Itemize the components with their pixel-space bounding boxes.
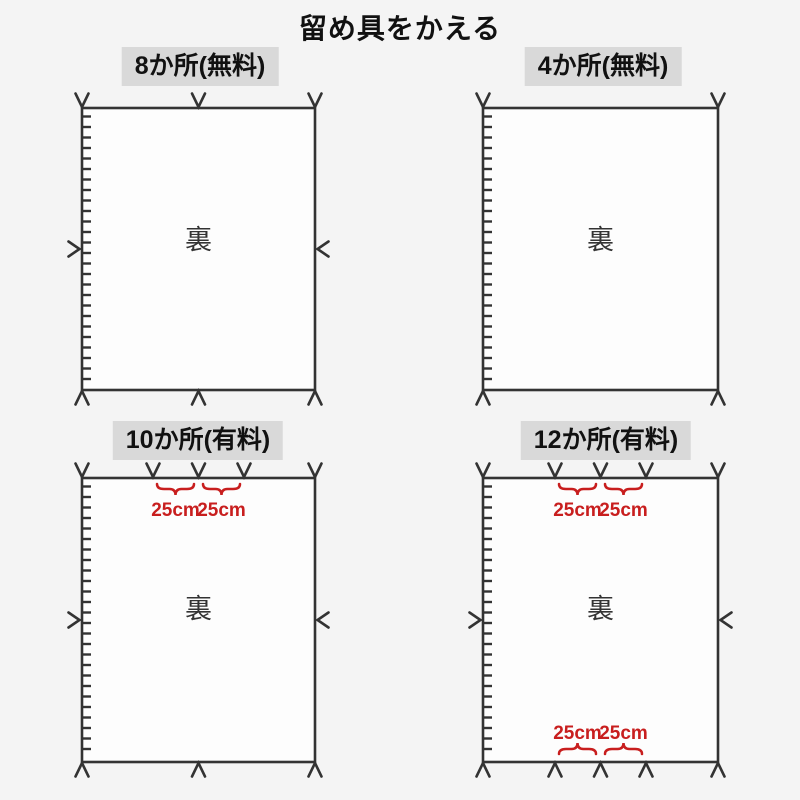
fastener-v-icon <box>640 464 653 478</box>
measurement-label: 25cm <box>599 723 648 744</box>
fastener-v-icon <box>721 613 732 628</box>
fastener-v-icon <box>594 763 607 777</box>
back-label: 裏 <box>587 594 614 624</box>
panel-1-header: 8か所(無料) <box>122 47 279 86</box>
measurement-label: 25cm <box>553 723 602 744</box>
panel-4-diagram: 25cm 25cm 25cm 25cm 裏 <box>400 460 800 800</box>
fastener-v-icon <box>192 464 205 478</box>
back-label: 裏 <box>587 225 614 255</box>
fastener-v-icon <box>309 94 322 108</box>
back-label: 裏 <box>185 225 212 255</box>
fastener-v-icon <box>477 464 490 478</box>
back-label: 裏 <box>185 594 212 624</box>
fastener-v-icon <box>712 94 725 108</box>
panel-1-diagram: 裏 <box>0 88 400 423</box>
fastener-v-icon <box>712 763 725 777</box>
fastener-v-icon <box>477 94 490 108</box>
fastener-v-icon <box>76 763 89 777</box>
measurement-label: 25cm <box>553 500 602 521</box>
fastener-v-icon <box>712 391 725 405</box>
fastener-marks-bottom <box>76 763 322 777</box>
fastener-v-icon <box>477 763 490 777</box>
fastener-v-icon <box>192 391 205 405</box>
fastener-marks-top <box>76 464 322 478</box>
fastener-v-icon <box>309 391 322 405</box>
panel-2-header: 4か所(無料) <box>525 47 682 86</box>
fastener-v-icon <box>69 242 80 257</box>
fastener-v-icon <box>76 94 89 108</box>
fastener-v-icon <box>318 242 329 257</box>
fastener-marks-bottom <box>477 391 725 405</box>
fastener-v-icon <box>549 763 562 777</box>
fastener-v-icon <box>309 763 322 777</box>
fastener-v-icon <box>318 613 329 628</box>
fastener-v-icon <box>76 391 89 405</box>
fastener-v-icon <box>192 763 205 777</box>
panel-3-diagram: 25cm 25cm 裏 <box>0 460 400 800</box>
panel-2-diagram: 裏 <box>400 88 800 423</box>
fastener-v-icon <box>640 763 653 777</box>
page-title: 留め具をかえる <box>0 7 800 47</box>
fastener-v-icon <box>549 464 562 478</box>
fastener-marks-top <box>477 94 725 108</box>
measurement-label: 25cm <box>151 500 200 521</box>
panel-4-header: 12か所(有料) <box>521 421 691 460</box>
fastener-v-icon <box>309 464 322 478</box>
measurement-label: 25cm <box>197 500 246 521</box>
fastener-marks-top <box>76 94 322 108</box>
measurement-label: 25cm <box>599 500 648 521</box>
panel-3-header: 10か所(有料) <box>113 421 283 460</box>
fastener-v-icon <box>712 464 725 478</box>
fastener-v-icon <box>238 464 251 478</box>
fastener-marks-bottom <box>477 763 725 777</box>
fastener-marks-bottom <box>76 391 322 405</box>
fastener-v-icon <box>470 613 481 628</box>
fastener-v-icon <box>477 391 490 405</box>
fastener-marks-top <box>477 464 725 478</box>
fastener-v-icon <box>192 94 205 108</box>
fastener-v-icon <box>69 613 80 628</box>
fastener-v-icon <box>147 464 160 478</box>
fastener-v-icon <box>594 464 607 478</box>
fastener-v-icon <box>76 464 89 478</box>
